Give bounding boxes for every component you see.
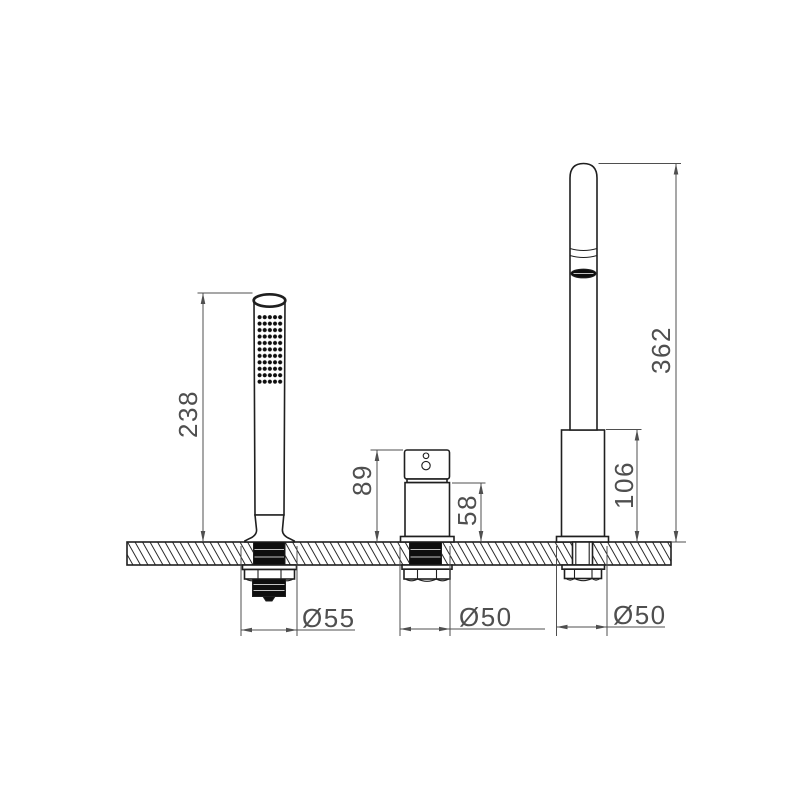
handshower-top-rim [254, 294, 286, 306]
dimension-handshower-height: 238 [173, 293, 253, 542]
dimension-spout-base-height: 106 [606, 430, 642, 543]
spout-tube [570, 164, 597, 431]
dim-label-d50-middle: Ø50 [459, 602, 513, 632]
diverter-hex-nut [404, 569, 450, 579]
dim-label-238: 238 [173, 390, 203, 438]
dimension-diverter-body-height: 58 [452, 483, 486, 542]
handshower-tail-thread [253, 579, 286, 597]
dimension-diverter-total-height: 89 [347, 450, 403, 542]
handshower-deck-thread [254, 542, 286, 565]
dim-label-58: 58 [452, 494, 482, 526]
dim-label-89: 89 [347, 464, 377, 496]
dim-label-362: 362 [646, 326, 676, 374]
bath-mixer-technical-drawing: 238 89 58 362 106 Ø55 Ø50 [0, 0, 800, 800]
diverter-body [405, 483, 450, 537]
handshower-hex-nut [245, 570, 295, 580]
technical-drawing-page: 238 89 58 362 106 Ø55 Ø50 [0, 0, 800, 800]
diverter-deck-thread [410, 542, 442, 565]
spout-hex-nut [565, 569, 602, 578]
spout-drawing [557, 164, 609, 581]
dim-label-106: 106 [609, 461, 639, 509]
dim-label-d50-right: Ø50 [613, 600, 667, 630]
handshower-base-flare [245, 515, 294, 542]
spout-base-flange [557, 537, 609, 543]
dim-label-d55: Ø55 [302, 603, 356, 633]
diverter-knob [405, 450, 450, 479]
handshower-thread-tip [263, 597, 275, 602]
handshower-spray-face [257, 314, 283, 385]
spout-base-cylinder [562, 430, 605, 537]
diverter-base-flange [401, 537, 455, 543]
